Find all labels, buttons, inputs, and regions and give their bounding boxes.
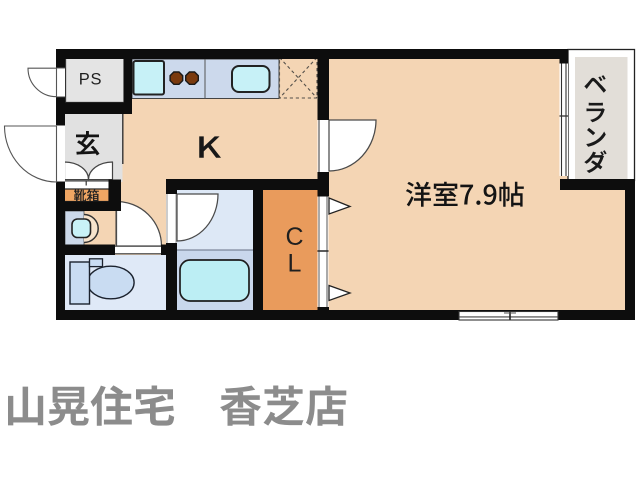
svg-text:C: C xyxy=(285,223,303,251)
svg-text:L: L xyxy=(288,250,302,278)
svg-text:PS: PS xyxy=(79,71,103,89)
